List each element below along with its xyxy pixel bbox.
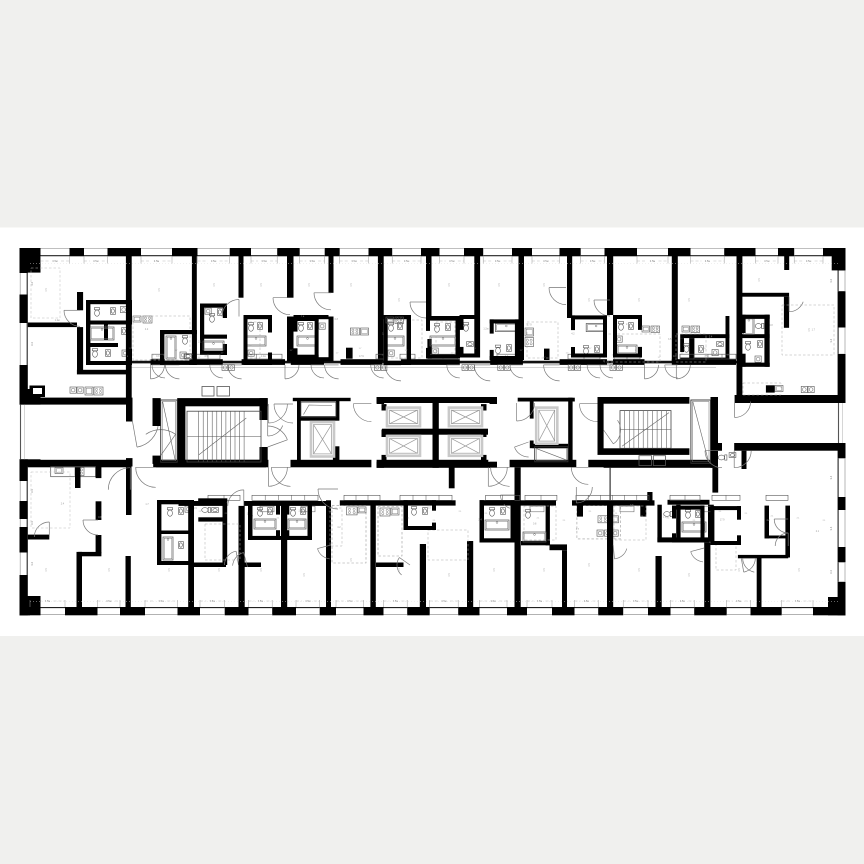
svg-text:17.9: 17.9 [527,324,532,327]
svg-text:3.5м: 3.5м [52,259,58,263]
svg-text:3.4: 3.4 [829,475,833,479]
svg-text:3.5м: 3.5м [705,259,711,263]
svg-text:1.2м: 1.2м [261,355,266,358]
svg-text:3.5м: 3.5м [106,599,112,603]
svg-text:3.5м: 3.5м [154,259,160,263]
svg-text:3.5м: 3.5м [310,259,316,263]
svg-text:3.5м: 3.5м [680,599,686,603]
svg-text:1.2м: 1.2м [55,319,60,322]
svg-text:3.5м: 3.5м [351,259,357,263]
svg-text:3.4: 3.4 [829,338,833,342]
svg-text:3.5м: 3.5м [491,599,497,603]
svg-text:3.5м: 3.5м [806,259,812,263]
svg-text:17.9: 17.9 [720,518,725,521]
svg-text:3.4: 3.4 [30,489,34,493]
svg-text:3.4: 3.4 [829,570,833,574]
svg-text:17.9: 17.9 [359,355,364,358]
svg-text:3.4: 3.4 [829,278,833,282]
svg-text:3.4: 3.4 [30,281,34,285]
svg-text:3.5м: 3.5м [543,259,549,263]
svg-text:17.9: 17.9 [298,509,303,512]
svg-text:3.5м: 3.5м [764,259,770,263]
svg-text:3.5м: 3.5м [633,599,639,603]
svg-text:3.5м: 3.5м [404,259,410,263]
svg-text:3.5м: 3.5м [393,599,399,603]
svg-text:1.2м: 1.2м [483,328,488,331]
svg-text:3.5м: 3.5м [93,259,99,263]
svg-text:3.5м: 3.5м [584,599,590,603]
svg-text:3.5м: 3.5м [211,259,217,263]
svg-text:3.5м: 3.5м [45,599,51,603]
svg-text:3.5м: 3.5м [736,599,742,603]
svg-text:3.4: 3.4 [30,521,34,525]
svg-text:3.5м: 3.5м [537,599,543,603]
svg-text:3.5м: 3.5м [258,599,264,603]
svg-text:3.4: 3.4 [829,526,833,530]
svg-text:3.4: 3.4 [30,561,34,565]
svg-text:3.5м: 3.5м [441,599,447,603]
svg-text:3.5м: 3.5м [305,599,311,603]
svg-text:3.5м: 3.5м [449,259,455,263]
svg-text:3.5м: 3.5м [210,599,216,603]
svg-text:3.5м: 3.5м [261,259,267,263]
svg-text:3.5м: 3.5м [650,259,656,263]
svg-text:3.4: 3.4 [30,342,34,346]
svg-text:3.5м: 3.5м [159,599,165,603]
svg-text:3.5м: 3.5м [495,259,501,263]
svg-text:3.5м: 3.5м [590,259,596,263]
svg-text:3.5м: 3.5м [347,599,353,603]
svg-text:17.9: 17.9 [105,326,110,329]
svg-text:3.5м: 3.5м [795,599,801,603]
